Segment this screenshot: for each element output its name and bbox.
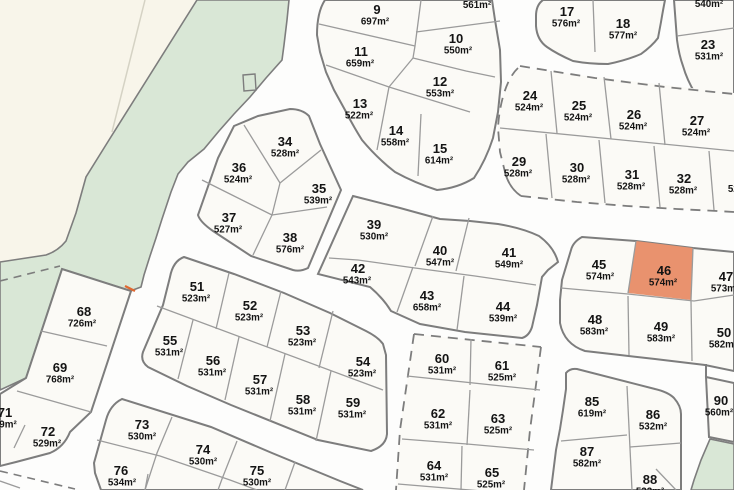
svg-text:530m²: 530m² — [189, 457, 218, 468]
svg-text:726m²: 726m² — [68, 319, 97, 330]
svg-text:47: 47 — [719, 269, 733, 284]
svg-text:540m²: 540m² — [695, 0, 724, 10]
svg-text:63: 63 — [491, 411, 505, 426]
svg-text:576m²: 576m² — [552, 19, 581, 30]
svg-text:534m²: 534m² — [108, 478, 137, 489]
svg-text:528m²: 528m² — [669, 186, 698, 197]
svg-text:768m²: 768m² — [46, 375, 75, 386]
svg-text:528m²: 528m² — [504, 169, 533, 180]
svg-text:574m²: 574m² — [586, 272, 615, 283]
svg-text:68: 68 — [77, 304, 91, 319]
svg-text:64: 64 — [427, 458, 442, 473]
svg-text:524m²: 524m² — [564, 113, 593, 124]
svg-text:528m²: 528m² — [617, 182, 646, 193]
svg-text:57: 57 — [253, 372, 267, 387]
svg-text:62: 62 — [431, 406, 445, 421]
svg-text:582m²: 582m² — [709, 340, 734, 351]
svg-text:40: 40 — [433, 243, 447, 258]
svg-text:523m²: 523m² — [288, 338, 317, 349]
svg-text:18: 18 — [616, 16, 630, 31]
svg-text:34: 34 — [278, 134, 293, 149]
svg-text:15: 15 — [433, 141, 447, 156]
svg-text:531m²: 531m² — [424, 421, 453, 432]
svg-text:26: 26 — [627, 107, 641, 122]
svg-text:24: 24 — [523, 88, 538, 103]
svg-text:71: 71 — [0, 405, 12, 420]
svg-text:528m²: 528m² — [728, 184, 734, 195]
svg-text:619m²: 619m² — [578, 409, 607, 420]
svg-text:525m²: 525m² — [484, 426, 513, 437]
svg-text:43: 43 — [420, 288, 434, 303]
svg-text:29: 29 — [512, 154, 526, 169]
svg-text:37: 37 — [222, 210, 236, 225]
svg-text:531m²: 531m² — [288, 407, 317, 418]
svg-text:74: 74 — [196, 442, 211, 457]
svg-text:54: 54 — [356, 354, 371, 369]
svg-text:528m²: 528m² — [271, 149, 300, 160]
svg-text:60: 60 — [435, 351, 449, 366]
svg-text:550m²: 550m² — [444, 46, 473, 57]
svg-text:531m²: 531m² — [420, 473, 449, 484]
svg-text:583m²: 583m² — [647, 334, 676, 345]
svg-text:49: 49 — [654, 319, 668, 334]
svg-text:11: 11 — [354, 44, 368, 59]
svg-text:574m²: 574m² — [649, 278, 678, 289]
svg-text:524m²: 524m² — [619, 122, 648, 133]
svg-text:524m²: 524m² — [224, 175, 253, 186]
svg-text:44: 44 — [496, 299, 511, 314]
svg-text:543m²: 543m² — [343, 276, 372, 287]
svg-text:539m²: 539m² — [304, 196, 333, 207]
svg-text:88: 88 — [643, 472, 657, 487]
svg-text:531m²: 531m² — [198, 368, 227, 379]
svg-text:65: 65 — [485, 465, 499, 480]
svg-text:87: 87 — [580, 444, 594, 459]
svg-text:13: 13 — [353, 96, 367, 111]
svg-text:560m²: 560m² — [705, 408, 734, 419]
svg-text:659m²: 659m² — [346, 59, 375, 70]
svg-text:75: 75 — [250, 463, 264, 478]
svg-text:583m²: 583m² — [580, 327, 609, 338]
svg-text:524m²: 524m² — [682, 128, 711, 139]
svg-text:69: 69 — [53, 360, 67, 375]
svg-text:30: 30 — [570, 160, 584, 175]
svg-text:10: 10 — [449, 31, 463, 46]
svg-text:48: 48 — [588, 312, 602, 327]
svg-text:530m²: 530m² — [360, 232, 389, 243]
svg-text:56: 56 — [206, 353, 220, 368]
svg-text:531m²: 531m² — [428, 366, 457, 377]
svg-text:61: 61 — [495, 358, 509, 373]
svg-text:525m²: 525m² — [477, 480, 506, 490]
svg-text:12: 12 — [433, 74, 447, 89]
svg-text:582m²: 582m² — [573, 459, 602, 470]
svg-text:73: 73 — [135, 417, 149, 432]
svg-text:576m²: 576m² — [276, 245, 305, 256]
svg-text:523m²: 523m² — [182, 294, 211, 305]
svg-text:27: 27 — [690, 113, 704, 128]
svg-text:32: 32 — [677, 171, 691, 186]
svg-text:42: 42 — [351, 261, 365, 276]
svg-text:53: 53 — [296, 323, 310, 338]
svg-text:14: 14 — [389, 123, 404, 138]
svg-text:530m²: 530m² — [243, 478, 272, 489]
svg-text:531m²: 531m² — [338, 410, 367, 421]
svg-text:547m²: 547m² — [426, 258, 455, 269]
svg-text:523m²: 523m² — [348, 369, 377, 380]
svg-text:531m²: 531m² — [245, 387, 274, 398]
svg-text:530m²: 530m² — [128, 432, 157, 443]
svg-text:573m²: 573m² — [711, 284, 734, 295]
svg-text:58: 58 — [296, 392, 310, 407]
svg-text:36: 36 — [232, 160, 246, 175]
svg-text:45: 45 — [592, 257, 606, 272]
svg-text:51: 51 — [190, 279, 204, 294]
svg-text:38: 38 — [283, 230, 297, 245]
svg-text:532m²: 532m² — [639, 422, 668, 433]
svg-text:539m²: 539m² — [489, 314, 518, 325]
svg-text:549m²: 549m² — [495, 260, 524, 271]
svg-text:72: 72 — [41, 424, 55, 439]
svg-text:529m²: 529m² — [33, 439, 62, 450]
svg-text:86: 86 — [646, 407, 660, 422]
svg-text:55: 55 — [163, 333, 177, 348]
svg-text:35: 35 — [312, 181, 326, 196]
svg-text:46: 46 — [657, 263, 671, 278]
svg-text:528m²: 528m² — [562, 175, 591, 186]
svg-text:531m²: 531m² — [155, 348, 184, 359]
svg-text:577m²: 577m² — [609, 31, 638, 42]
svg-text:17: 17 — [560, 4, 574, 19]
svg-text:23: 23 — [701, 37, 715, 52]
svg-text:531m²: 531m² — [695, 52, 724, 63]
svg-text:39: 39 — [367, 217, 381, 232]
svg-text:697m²: 697m² — [361, 17, 390, 28]
svg-text:523m²: 523m² — [235, 313, 264, 324]
svg-text:561m²: 561m² — [463, 0, 492, 11]
svg-text:31: 31 — [625, 167, 639, 182]
svg-text:9m²: 9m² — [0, 420, 17, 431]
svg-text:76: 76 — [114, 463, 128, 478]
svg-text:59: 59 — [346, 395, 360, 410]
svg-text:558m²: 558m² — [381, 138, 410, 149]
svg-text:525m²: 525m² — [488, 373, 517, 384]
svg-text:90: 90 — [714, 393, 728, 408]
svg-text:52: 52 — [243, 298, 257, 313]
svg-text:41: 41 — [502, 245, 516, 260]
svg-text:522m²: 522m² — [345, 111, 374, 122]
svg-text:527m²: 527m² — [214, 225, 243, 236]
svg-text:532m²: 532m² — [636, 487, 665, 490]
svg-text:524m²: 524m² — [515, 103, 544, 114]
svg-text:50: 50 — [717, 325, 731, 340]
svg-text:614m²: 614m² — [425, 156, 454, 167]
svg-text:553m²: 553m² — [426, 89, 455, 100]
svg-text:658m²: 658m² — [413, 303, 442, 314]
svg-text:85: 85 — [585, 394, 599, 409]
svg-text:9: 9 — [373, 2, 380, 17]
svg-text:25: 25 — [572, 98, 586, 113]
